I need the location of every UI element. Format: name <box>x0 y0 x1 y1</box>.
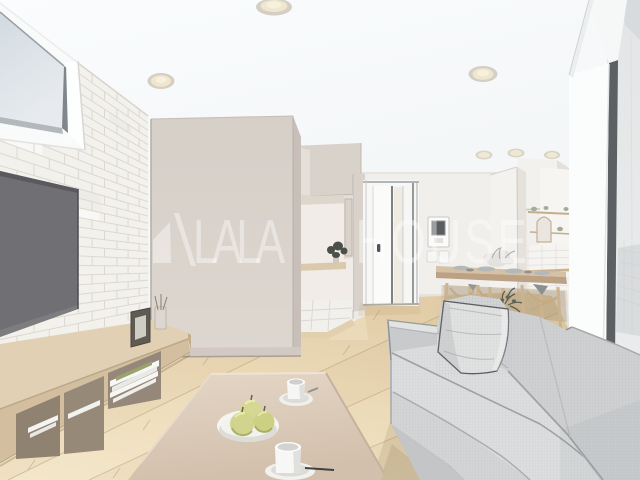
svg-text:LALA: LALA <box>193 208 285 277</box>
svg-text:HOUSE: HOUSE <box>356 208 527 277</box>
